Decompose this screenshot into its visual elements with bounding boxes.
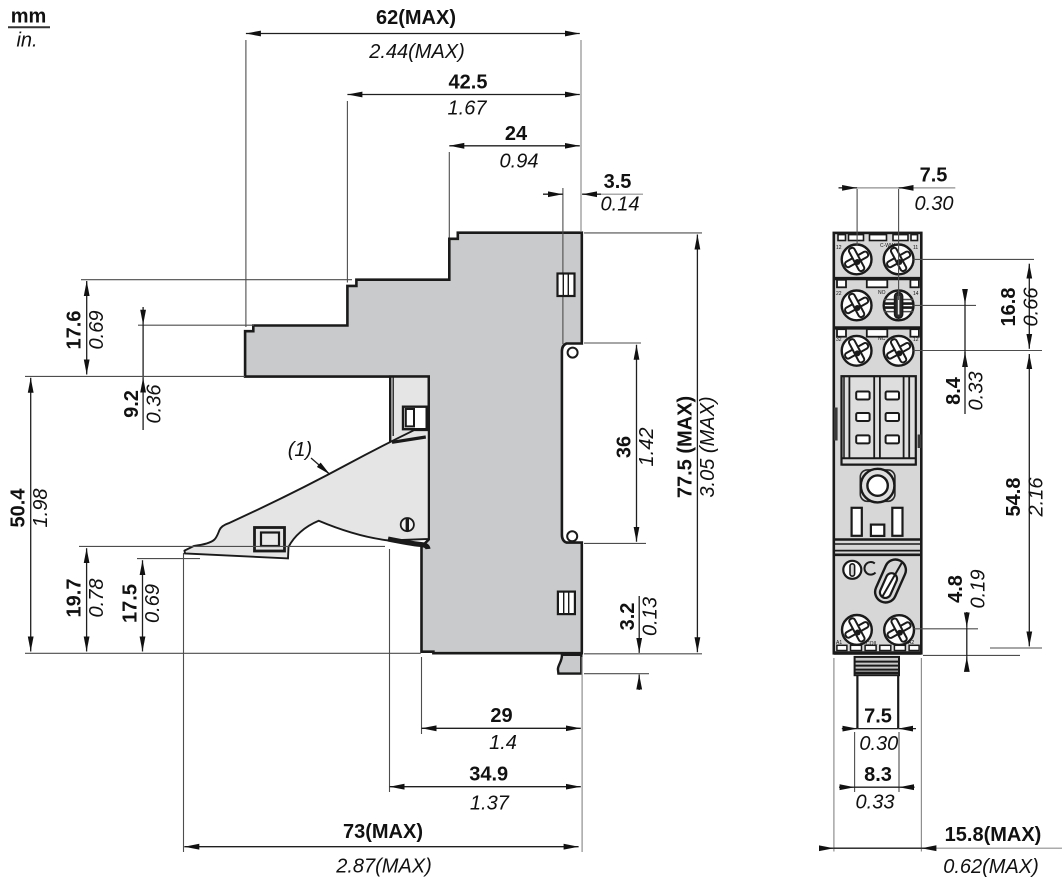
svg-text:3.05 (MAX): 3.05 (MAX) [697, 396, 719, 497]
svg-text:12: 12 [836, 245, 842, 251]
svg-text:50.4: 50.4 [8, 488, 30, 528]
svg-text:19.7: 19.7 [64, 579, 86, 618]
svg-text:(1): (1) [288, 439, 312, 461]
svg-text:NC: NC [878, 336, 886, 342]
svg-text:22: 22 [836, 291, 842, 297]
svg-text:1.4: 1.4 [489, 732, 517, 754]
svg-text:8.4: 8.4 [943, 376, 965, 405]
svg-text:73(MAX): 73(MAX) [343, 821, 423, 843]
svg-text:4.8: 4.8 [945, 575, 967, 603]
svg-text:36: 36 [614, 436, 636, 458]
svg-text:0.13: 0.13 [640, 597, 662, 636]
svg-text:NO: NO [878, 290, 886, 296]
svg-text:12: 12 [913, 337, 919, 343]
svg-text:0.36: 0.36 [144, 384, 166, 424]
svg-text:1.42: 1.42 [636, 428, 658, 467]
svg-text:0.33: 0.33 [966, 372, 988, 411]
svg-text:0.69: 0.69 [86, 311, 108, 350]
svg-text:54.8: 54.8 [1003, 478, 1025, 517]
svg-text:42.5: 42.5 [449, 72, 488, 94]
svg-text:62(MAX): 62(MAX) [376, 7, 456, 29]
svg-text:3.5: 3.5 [604, 171, 632, 193]
svg-text:0.69: 0.69 [142, 584, 164, 623]
svg-text:3.2: 3.2 [617, 603, 639, 631]
svg-text:0.62(MAX): 0.62(MAX) [943, 856, 1039, 878]
svg-text:77.5 (MAX): 77.5 (MAX) [674, 396, 696, 498]
svg-text:0.94: 0.94 [500, 151, 539, 173]
svg-text:0.30: 0.30 [915, 193, 954, 215]
svg-text:0.14: 0.14 [601, 194, 640, 216]
svg-text:14: 14 [913, 291, 919, 297]
svg-text:0.19: 0.19 [967, 570, 989, 609]
svg-text:17.6: 17.6 [64, 311, 86, 350]
svg-text:0.30: 0.30 [859, 733, 898, 755]
svg-text:2.16: 2.16 [1026, 477, 1048, 518]
svg-text:16.8: 16.8 [998, 288, 1020, 327]
svg-text:8.3: 8.3 [864, 764, 892, 786]
svg-text:7.5: 7.5 [864, 706, 892, 728]
svg-text:0.33: 0.33 [856, 792, 895, 814]
svg-text:1.98: 1.98 [30, 489, 52, 528]
svg-text:2.87(MAX): 2.87(MAX) [335, 856, 432, 878]
svg-text:2.44(MAX): 2.44(MAX) [368, 41, 465, 63]
svg-text:15.8(MAX): 15.8(MAX) [945, 824, 1042, 846]
svg-text:32: 32 [836, 337, 842, 343]
svg-text:9.2: 9.2 [121, 390, 143, 418]
svg-text:7.5: 7.5 [920, 165, 948, 187]
svg-text:in.: in. [16, 30, 37, 52]
svg-text:34.9: 34.9 [469, 764, 508, 786]
svg-text:24: 24 [505, 123, 528, 145]
svg-text:29: 29 [490, 705, 512, 727]
svg-text:1.67: 1.67 [448, 98, 488, 120]
svg-text:17.5: 17.5 [120, 584, 142, 623]
svg-text:11: 11 [913, 245, 918, 251]
svg-text:C-WW: C-WW [880, 243, 895, 249]
svg-text:mm: mm [11, 6, 47, 28]
svg-text:0.66: 0.66 [1021, 287, 1043, 327]
svg-text:0.78: 0.78 [86, 579, 108, 618]
svg-text:1.37: 1.37 [470, 793, 510, 815]
